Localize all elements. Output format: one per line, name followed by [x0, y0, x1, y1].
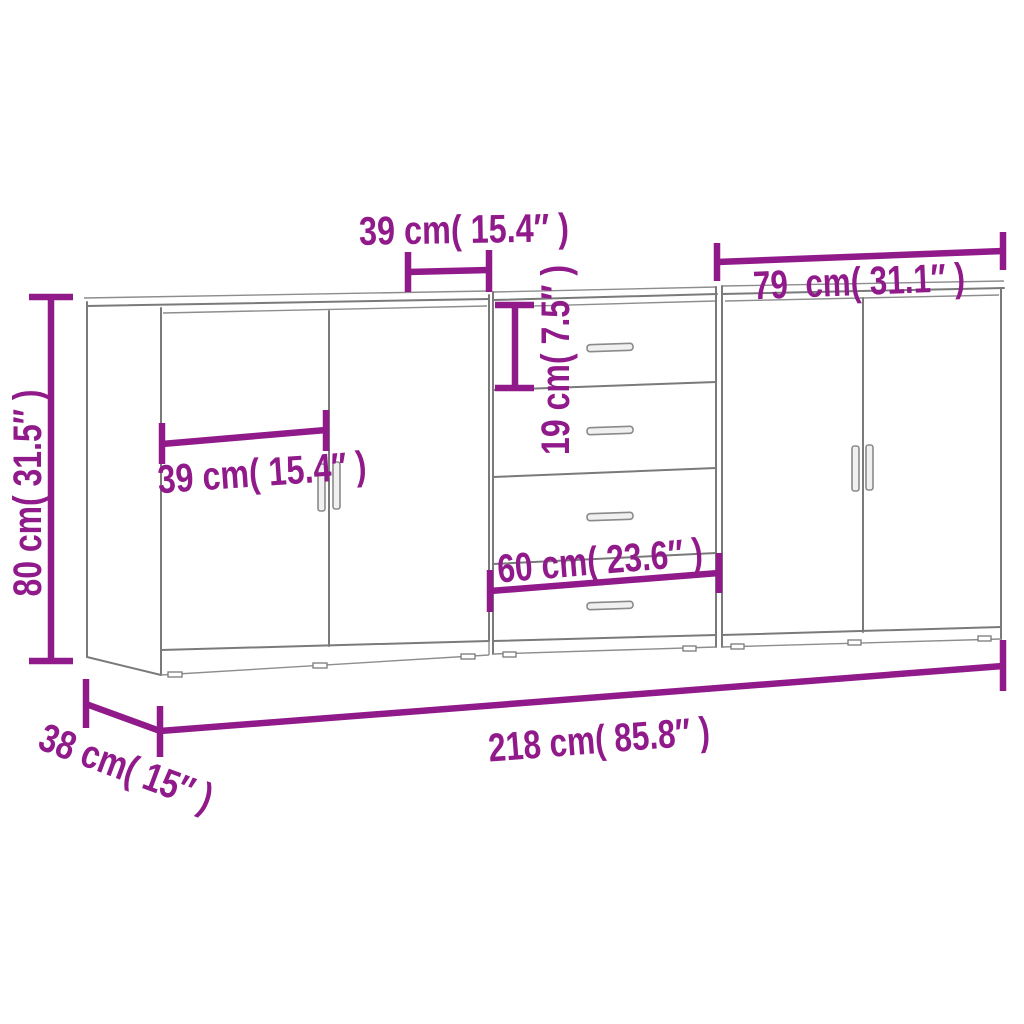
cabinet-foot [978, 636, 991, 641]
door-bottom-edge [722, 627, 1001, 635]
door-handle [852, 446, 859, 491]
dim-label-top-section-width: 39 cm( 15.4″ ) [359, 206, 570, 254]
dimension-line [162, 430, 326, 444]
cabinet-top-back-edge [84, 291, 489, 298]
door-bottom-edge [161, 641, 489, 650]
cabinet-foot [461, 654, 475, 659]
dim-overall-width: 218 cm( 85.8″ ) [160, 640, 1003, 771]
dimension-line [408, 270, 489, 272]
door-handle [866, 445, 873, 490]
dimension-annotations: 39 cm( 15.4″ ) 79 cm( 31.1″ ) 80 cm( 31.… [6, 206, 1003, 820]
cabinet-side-bottom-edge [87, 657, 161, 675]
dim-label-drawer-height: 19 cm( 7.5″ ) [534, 265, 578, 455]
dim-overall-height: 80 cm( 31.5″ ) [6, 297, 73, 661]
dim-label-middle-section-width: 60 cm( 23.6″ ) [496, 530, 705, 591]
cabinet-foot [848, 640, 861, 645]
sideboard-dimension-drawing: 39 cm( 15.4″ ) 79 cm( 31.1″ ) 80 cm( 31.… [0, 0, 1024, 1024]
dim-drawer-height: 19 cm( 7.5″ ) [495, 265, 578, 455]
dim-label-overall-height: 80 cm( 31.5″ ) [6, 390, 50, 597]
cabinet-foot [731, 644, 744, 649]
door-top-gap-line [163, 306, 487, 313]
dim-middle-section-width: 60 cm( 23.6″ ) [490, 530, 719, 612]
drawer-handle [587, 601, 633, 610]
cabinet-foot [683, 646, 696, 651]
drawer-handle [587, 343, 633, 352]
drawer-bottom-edge [493, 635, 716, 641]
dim-left-door-width: 39 cm( 15.4″ ) [156, 410, 368, 502]
middle-cabinet [493, 287, 717, 657]
cabinet-foot [313, 663, 327, 668]
right-cabinet [722, 281, 1004, 649]
cabinet-top-front-edge [493, 294, 717, 300]
dim-overall-depth: 38 cm( 15″ ) [33, 679, 219, 820]
cabinet-top-back-edge [493, 287, 717, 292]
cabinet-foot [168, 672, 182, 677]
product-dimension-diagram: 39 cm( 15.4″ ) 79 cm( 31.1″ ) 80 cm( 31.… [0, 0, 1024, 1024]
cabinet-foot [503, 652, 516, 657]
dimension-line [86, 704, 160, 731]
drawer-handle [587, 426, 633, 435]
dim-label-overall-width: 218 cm( 85.8″ ) [487, 709, 712, 770]
dim-right-section-width: 79 cm( 31.1″ ) [717, 232, 1003, 308]
drawer-divider-line [493, 468, 716, 477]
dim-label-right-section-width: 79 cm( 31.1″ ) [752, 256, 966, 308]
drawer-handle [587, 512, 633, 521]
cabinet-top-front-edge [87, 299, 489, 306]
